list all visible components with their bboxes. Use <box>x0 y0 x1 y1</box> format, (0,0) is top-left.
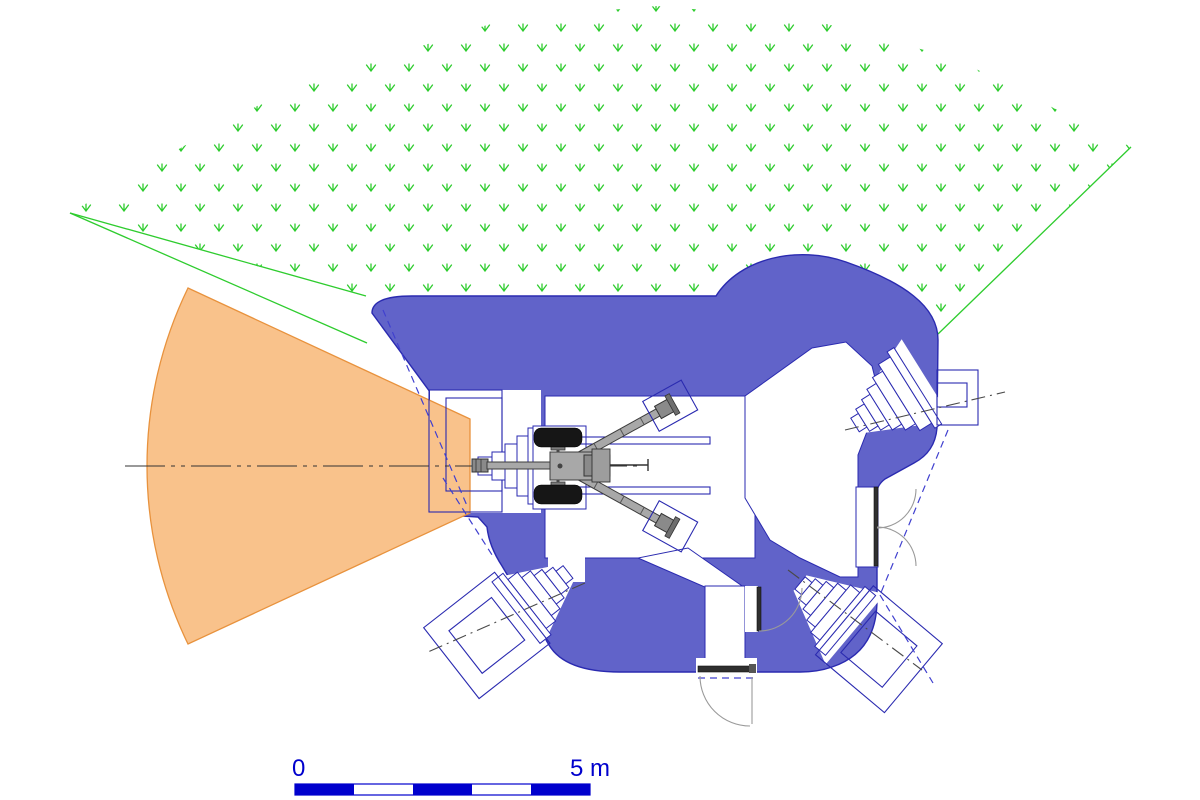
scale-zero-label: 0 <box>292 755 305 782</box>
gun-wheel-lower <box>534 485 582 504</box>
scale-end-label: 5 m <box>570 755 610 782</box>
entrance-corridor <box>705 586 745 670</box>
east-double-door <box>874 487 916 566</box>
casemate-plan-canvas: 0 5 m <box>0 0 1200 800</box>
scale-bar: 0 5 m <box>292 755 610 795</box>
gun-wheel-upper <box>534 428 582 447</box>
plan-drawing: 0 5 m <box>0 0 1200 800</box>
gun-muzzle-brake <box>472 459 488 472</box>
entrance-door <box>698 664 756 726</box>
interior-door-gap <box>745 586 758 632</box>
